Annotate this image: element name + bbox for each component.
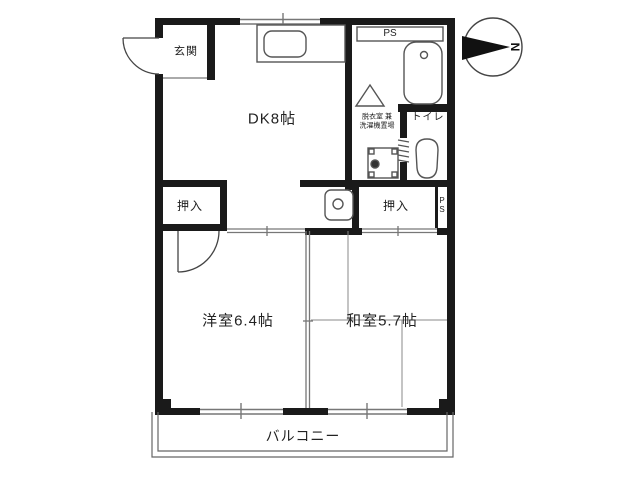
label-toilet: トイレ [412, 113, 445, 123]
washbasin-drain [333, 199, 343, 209]
pipe-space-top [357, 27, 443, 41]
wall-mid-right [300, 180, 455, 187]
label-balcony: バルコニー [266, 429, 341, 443]
label-dressing-room-line2: 洗濯機置場 [360, 123, 395, 130]
washer-pan-corner [369, 149, 374, 154]
bathtub-faucet [421, 52, 428, 59]
door-swings [123, 38, 219, 272]
label-dining-kitchen: DK8帖 [248, 112, 296, 127]
floor-plan-image: N 玄関 DK8帖 PS 脱衣室 兼 洗濯機置場 トイレ 押入 押入 PS 洋室… [0, 0, 640, 480]
wall-closet-left-side [220, 180, 227, 231]
kitchen-sink [264, 31, 306, 57]
wall-segment [283, 408, 328, 415]
compass: N [462, 18, 522, 76]
label-japanese-room: 和室5.7帖 [346, 314, 418, 329]
wall-dk-bath [345, 25, 352, 190]
label-closet-right: 押入 [383, 200, 409, 212]
wall-closet-left-bottom [155, 224, 227, 231]
label-dressing-room-line1: 脱衣室 兼 [362, 114, 392, 121]
wall-segment [155, 74, 163, 415]
label-western-room: 洋室6.4帖 [202, 314, 274, 329]
wall-genkan-right [207, 18, 215, 80]
compass-north-label: N [508, 43, 522, 52]
washer-drain [371, 160, 379, 168]
room-door-arc [178, 231, 219, 272]
wall-segment [447, 18, 455, 415]
washer-pan-corner [392, 149, 397, 154]
toilet-bowl [416, 139, 438, 178]
wall-mid-left [155, 180, 227, 187]
wall-toilet-divider [400, 112, 407, 138]
washer-pan-corner [392, 172, 397, 177]
label-pipe-space-top: PS [383, 29, 396, 39]
label-entrance: 玄関 [174, 47, 198, 58]
floor-plan-drawing: N [0, 0, 640, 480]
wall-segment [155, 18, 240, 25]
washer-pan-corner [369, 172, 374, 177]
label-pipe-space-side: PS [438, 196, 447, 214]
wall-bottom-mid [305, 228, 362, 235]
label-closet-left: 押入 [177, 200, 203, 212]
wall-bottom-right [437, 228, 455, 235]
entrance-door-arc [123, 38, 159, 74]
windows [200, 13, 407, 419]
bath-door-triangle [356, 85, 384, 106]
wall-segment [320, 18, 455, 25]
sliding-doors [163, 78, 437, 408]
toilet-door-hatch [398, 140, 409, 162]
wall-bath-bottom [398, 104, 455, 112]
wall-segment [155, 18, 163, 38]
